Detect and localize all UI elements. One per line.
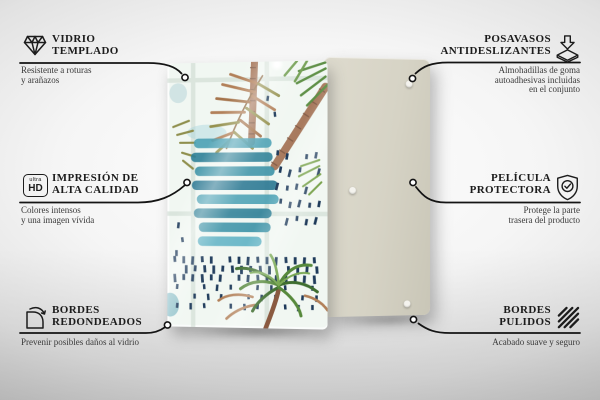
feature-desc: Colores intensosy una imagen vívida [21, 206, 94, 225]
glass-sparkle [269, 60, 285, 72]
feature-title: BORDESREDONDEADOS [52, 304, 195, 328]
polished-edges-icon [555, 306, 580, 331]
feature-title: BORDESPULIDOS [405, 304, 551, 328]
feature-pelicula-protectora: PELÍCULAPROTECTORA Protege la partetrase… [405, 172, 580, 196]
feature-posavasos-antideslizantes: POSAVASOSANTIDESLIZANTES Almohadillas de… [405, 33, 580, 57]
diamond-icon [23, 35, 47, 56]
anti-slip-pad-icon [555, 35, 580, 63]
rounded-corner-icon [23, 306, 49, 332]
ultra-hd-icon: ultraHD [23, 174, 48, 197]
feature-desc: Almohadillas de gomaautoadhesivas inclui… [495, 66, 580, 95]
feature-desc: Protege la partetrasera del producto [509, 206, 580, 225]
product-infographic: VIDRIOTEMPLADO Resistente a roturasy ara… [0, 0, 600, 400]
feature-desc: Acabado suave y seguro [492, 338, 580, 348]
anti-slip-pad [406, 81, 413, 88]
feature-title: PELÍCULAPROTECTORA [405, 172, 551, 196]
feature-vidrio-templado: VIDRIOTEMPLADO Resistente a roturasy ara… [20, 33, 195, 57]
feature-desc: Resistente a roturasy arañazos [21, 66, 91, 85]
feature-title: IMPRESIÓN DEALTA CALIDAD [52, 172, 195, 196]
feature-bordes-pulidos: BORDESPULIDOS Acabado suave y seguro [405, 304, 580, 328]
feature-title: POSAVASOSANTIDESLIZANTES [405, 33, 551, 57]
shield-check-icon [555, 174, 580, 201]
feature-bordes-redondeados: BORDESREDONDEADOS Prevenir posibles daño… [20, 304, 195, 328]
feature-impresion-alta-calidad: ultraHD IMPRESIÓN DEALTA CALIDAD Colores… [20, 172, 195, 196]
anti-slip-pad [349, 187, 356, 194]
feature-desc: Prevenir posibles daños al vidrio [21, 338, 139, 348]
feature-title: VIDRIOTEMPLADO [52, 33, 195, 57]
